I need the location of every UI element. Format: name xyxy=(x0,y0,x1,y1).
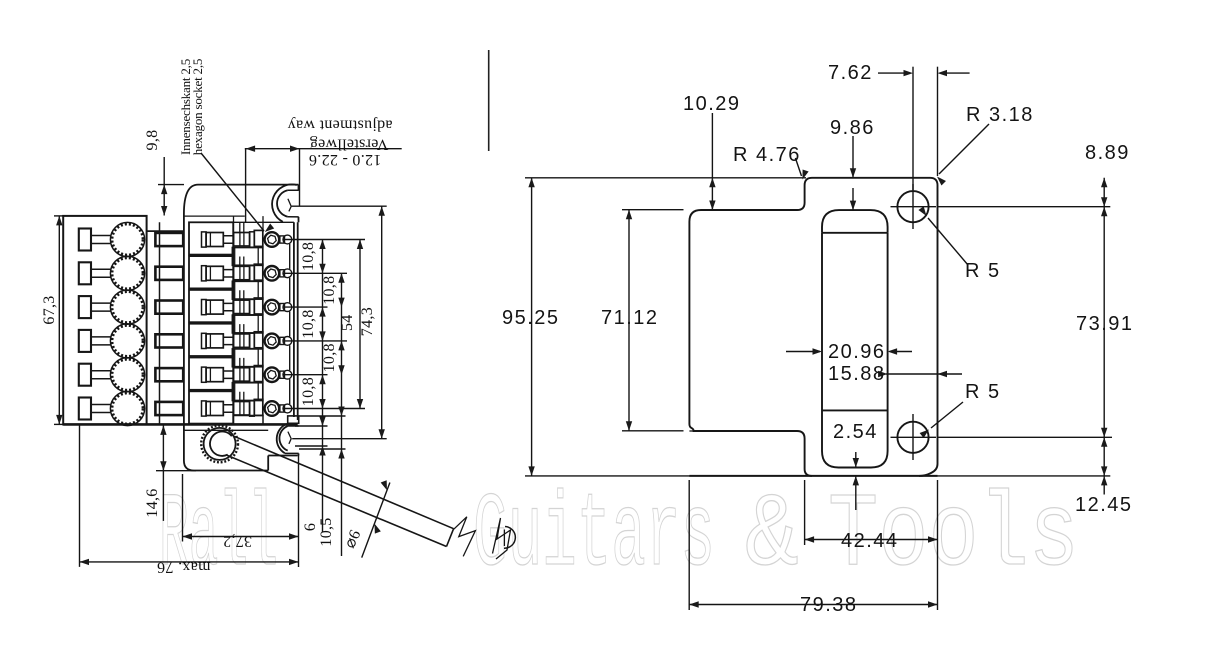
svg-text:74,3: 74,3 xyxy=(359,307,376,336)
svg-text:10,8: 10,8 xyxy=(321,276,338,305)
svg-text:12.0 - 22.6: 12.0 - 22.6 xyxy=(309,151,382,168)
svg-text:Verstellweg: Verstellweg xyxy=(310,136,389,153)
svg-text:37,2: 37,2 xyxy=(223,533,252,550)
svg-text:73.91: 73.91 xyxy=(1076,313,1134,335)
svg-text:R 4.76: R 4.76 xyxy=(733,144,801,166)
svg-text:67,3: 67,3 xyxy=(41,295,58,324)
svg-text:9,8: 9,8 xyxy=(144,130,161,151)
svg-text:79.38: 79.38 xyxy=(800,594,858,616)
svg-text:R 5: R 5 xyxy=(965,381,1001,403)
svg-text:15.88: 15.88 xyxy=(828,363,886,385)
svg-text:42.44: 42.44 xyxy=(841,530,899,552)
svg-text:10.29: 10.29 xyxy=(683,93,741,115)
svg-text:10,8: 10,8 xyxy=(300,242,317,271)
svg-text:R 3.18: R 3.18 xyxy=(966,104,1034,126)
svg-text:adjustment way: adjustment way xyxy=(287,117,392,134)
svg-text:10,8: 10,8 xyxy=(321,343,338,372)
svg-text:9.86: 9.86 xyxy=(830,117,875,139)
svg-text:hexagon socket 2,5: hexagon socket 2,5 xyxy=(190,59,205,155)
svg-text:&: & xyxy=(745,477,799,596)
svg-text:2.54: 2.54 xyxy=(833,421,878,443)
svg-text:R 5: R 5 xyxy=(965,260,1001,282)
svg-text:max. 76: max. 76 xyxy=(157,559,211,576)
svg-text:8.89: 8.89 xyxy=(1085,142,1130,164)
svg-text:12.45: 12.45 xyxy=(1075,494,1133,516)
svg-text:6: 6 xyxy=(302,523,319,531)
svg-text:71.12: 71.12 xyxy=(601,307,659,329)
svg-text:54: 54 xyxy=(339,314,356,331)
svg-text:10,8: 10,8 xyxy=(300,377,317,406)
svg-text:10,8: 10,8 xyxy=(300,309,317,338)
svg-text:7.62: 7.62 xyxy=(828,62,873,84)
svg-text:10,5: 10,5 xyxy=(318,517,335,546)
svg-text:20.96: 20.96 xyxy=(828,341,886,363)
svg-text:14,6: 14,6 xyxy=(144,488,161,517)
svg-text:95.25: 95.25 xyxy=(502,307,560,329)
